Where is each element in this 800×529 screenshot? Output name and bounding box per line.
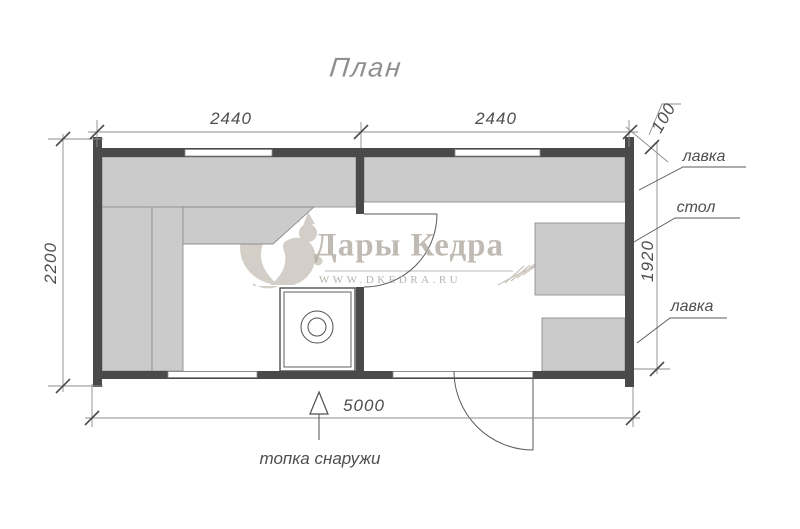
dim-building-depth: 2200 xyxy=(41,242,61,284)
wall-partition-lower xyxy=(356,287,364,378)
table-rest xyxy=(535,223,625,295)
label-furnace-note: топка снаружи xyxy=(259,449,380,469)
dim-room-left-width: 2440 xyxy=(210,109,252,129)
label-bench-bottom: лавка xyxy=(671,298,714,316)
window-top-left xyxy=(185,150,272,157)
wall-partition-upper xyxy=(356,149,364,214)
label-bench-top: лавка xyxy=(683,148,726,166)
stove xyxy=(280,288,355,371)
dim-building-length: 5000 xyxy=(343,396,385,416)
window-bottom-left xyxy=(168,372,257,378)
dim-room-right-depth: 1920 xyxy=(638,240,658,282)
bench-steam-left-2 xyxy=(152,207,183,371)
floor-plan-page: План 2440 2440 100 2200 1920 5000 лавка … xyxy=(0,0,800,529)
watermark-website: WWW.DKEDRA.RU xyxy=(319,274,461,286)
wall-right xyxy=(625,137,634,387)
entrance-door xyxy=(454,371,533,450)
bench-rest-top xyxy=(364,157,625,202)
furnace-arrow-icon xyxy=(310,392,328,440)
leader-bench-bottom xyxy=(637,318,727,343)
page-title: План xyxy=(328,53,404,84)
door-threshold xyxy=(393,372,533,378)
leader-bench-top xyxy=(639,167,746,190)
window-top-right xyxy=(455,150,540,157)
bench-steam-top xyxy=(102,157,356,207)
watermark-brand: Дары Кедра xyxy=(314,228,504,265)
wall-left xyxy=(93,137,102,387)
dim-room-right-width: 2440 xyxy=(475,109,517,129)
bench-rest-bottom xyxy=(542,318,625,371)
bench-steam-left-1 xyxy=(102,207,152,371)
leader-table xyxy=(634,218,740,242)
label-table: стол xyxy=(677,199,716,217)
